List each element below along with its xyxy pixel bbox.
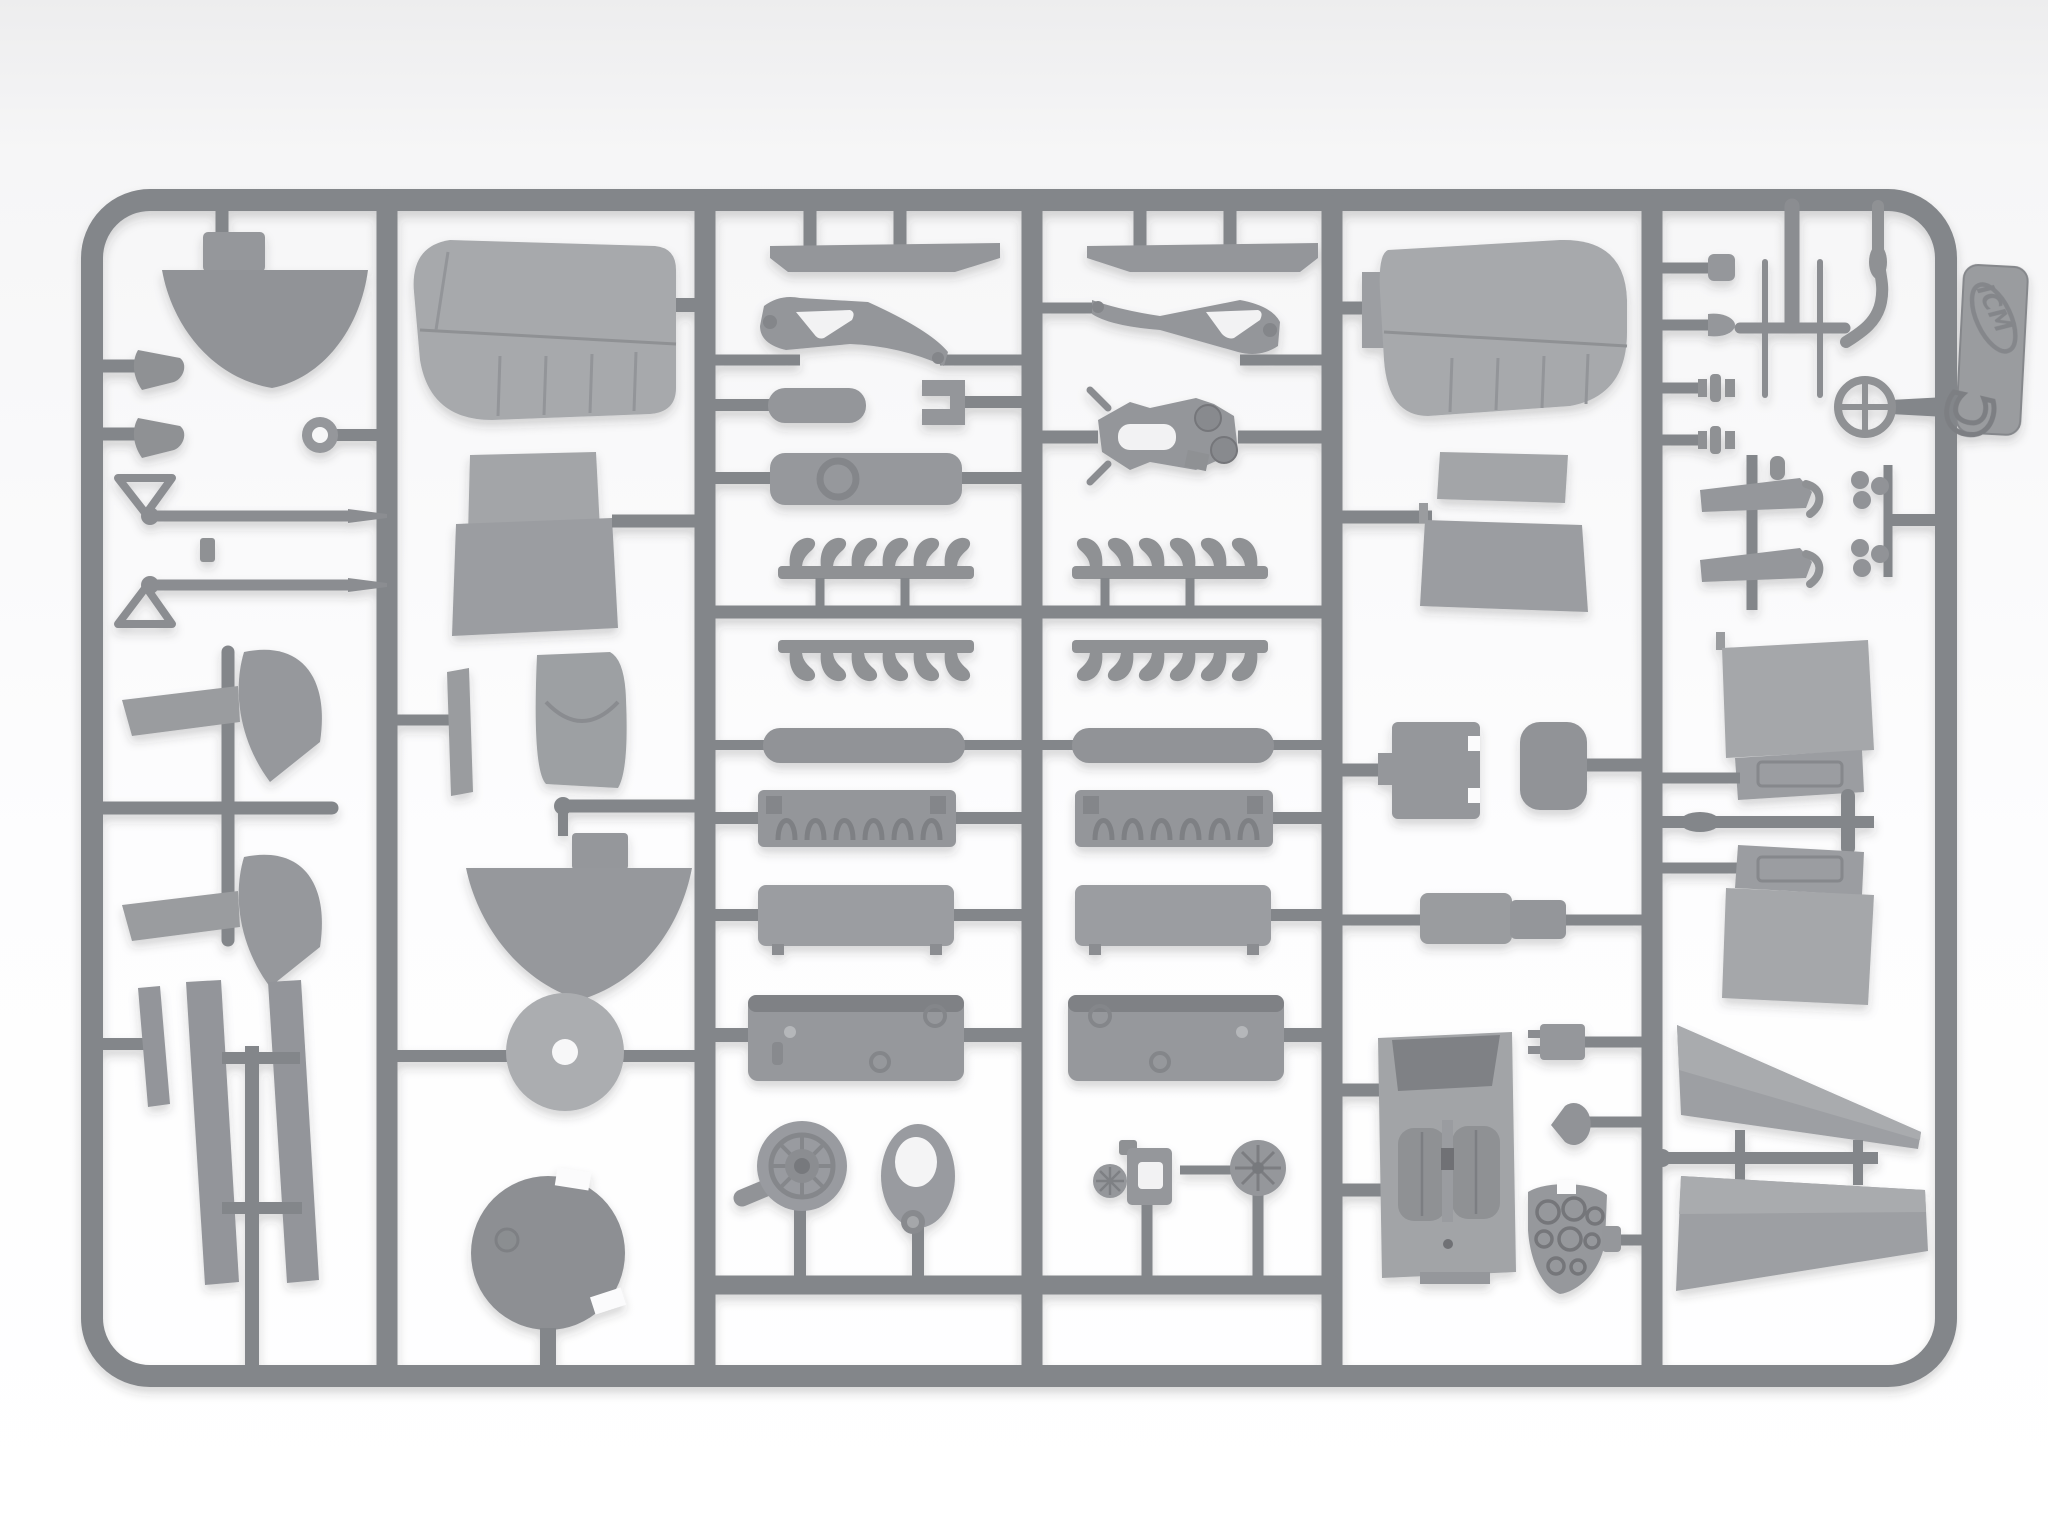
part-upper-wing xyxy=(414,240,705,420)
photo-canvas: ICM C xyxy=(0,0,2048,1536)
sprue-photo: ICM C xyxy=(0,0,2048,1536)
